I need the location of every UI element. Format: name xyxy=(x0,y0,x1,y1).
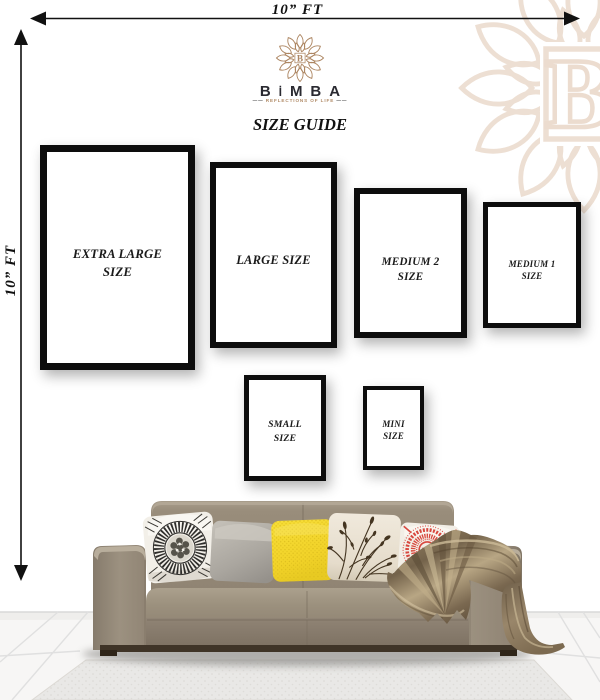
svg-text:B: B xyxy=(545,38,600,149)
svg-text:B: B xyxy=(297,54,303,64)
